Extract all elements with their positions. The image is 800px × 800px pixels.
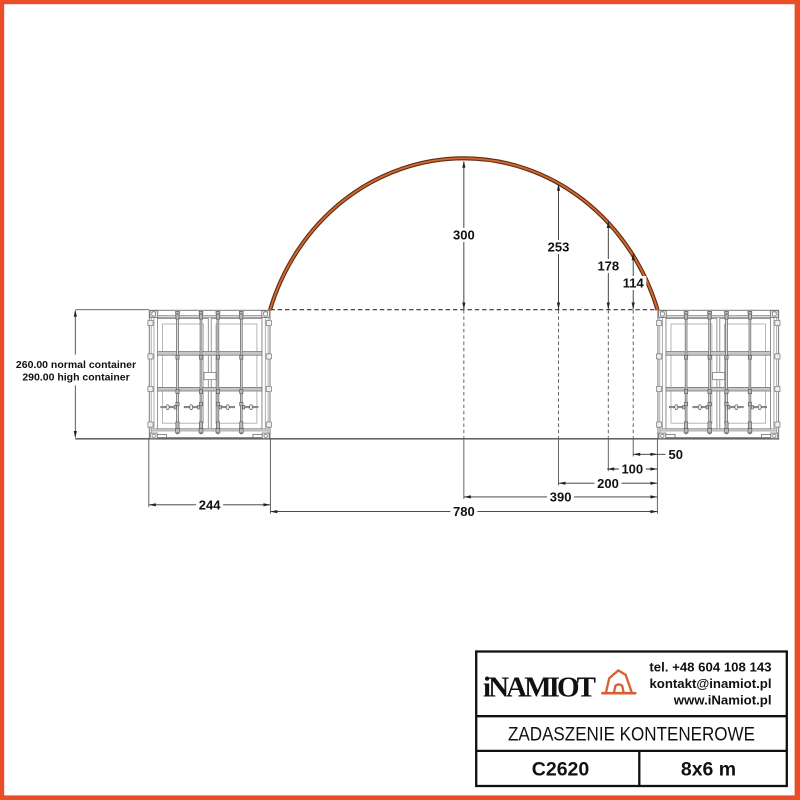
svg-text:50: 50 [669, 447, 683, 462]
svg-text:iNAMIOT: iNAMIOT [483, 672, 596, 704]
svg-text:260.00 normal container: 260.00 normal container [16, 359, 136, 371]
svg-text:290.00 high container: 290.00 high container [22, 372, 129, 384]
svg-text:300: 300 [453, 228, 475, 243]
svg-text:253: 253 [548, 240, 570, 255]
svg-text:100: 100 [621, 462, 643, 477]
svg-text:780: 780 [453, 504, 475, 519]
svg-text:ZADASZENIE KONTENEROWE: ZADASZENIE KONTENEROWE [508, 724, 755, 745]
svg-text:390: 390 [550, 490, 572, 505]
svg-text:8x6 m: 8x6 m [681, 759, 736, 781]
svg-text:C2620: C2620 [532, 759, 590, 781]
svg-text:114: 114 [623, 276, 645, 291]
svg-text:178: 178 [597, 259, 619, 274]
svg-text:200: 200 [597, 476, 619, 491]
svg-text:www.iNamiot.pl: www.iNamiot.pl [673, 692, 772, 707]
svg-text:tel. +48 604 108 143: tel. +48 604 108 143 [649, 659, 771, 674]
svg-text:244: 244 [199, 497, 221, 512]
svg-text:kontakt@inamiot.pl: kontakt@inamiot.pl [649, 676, 771, 691]
